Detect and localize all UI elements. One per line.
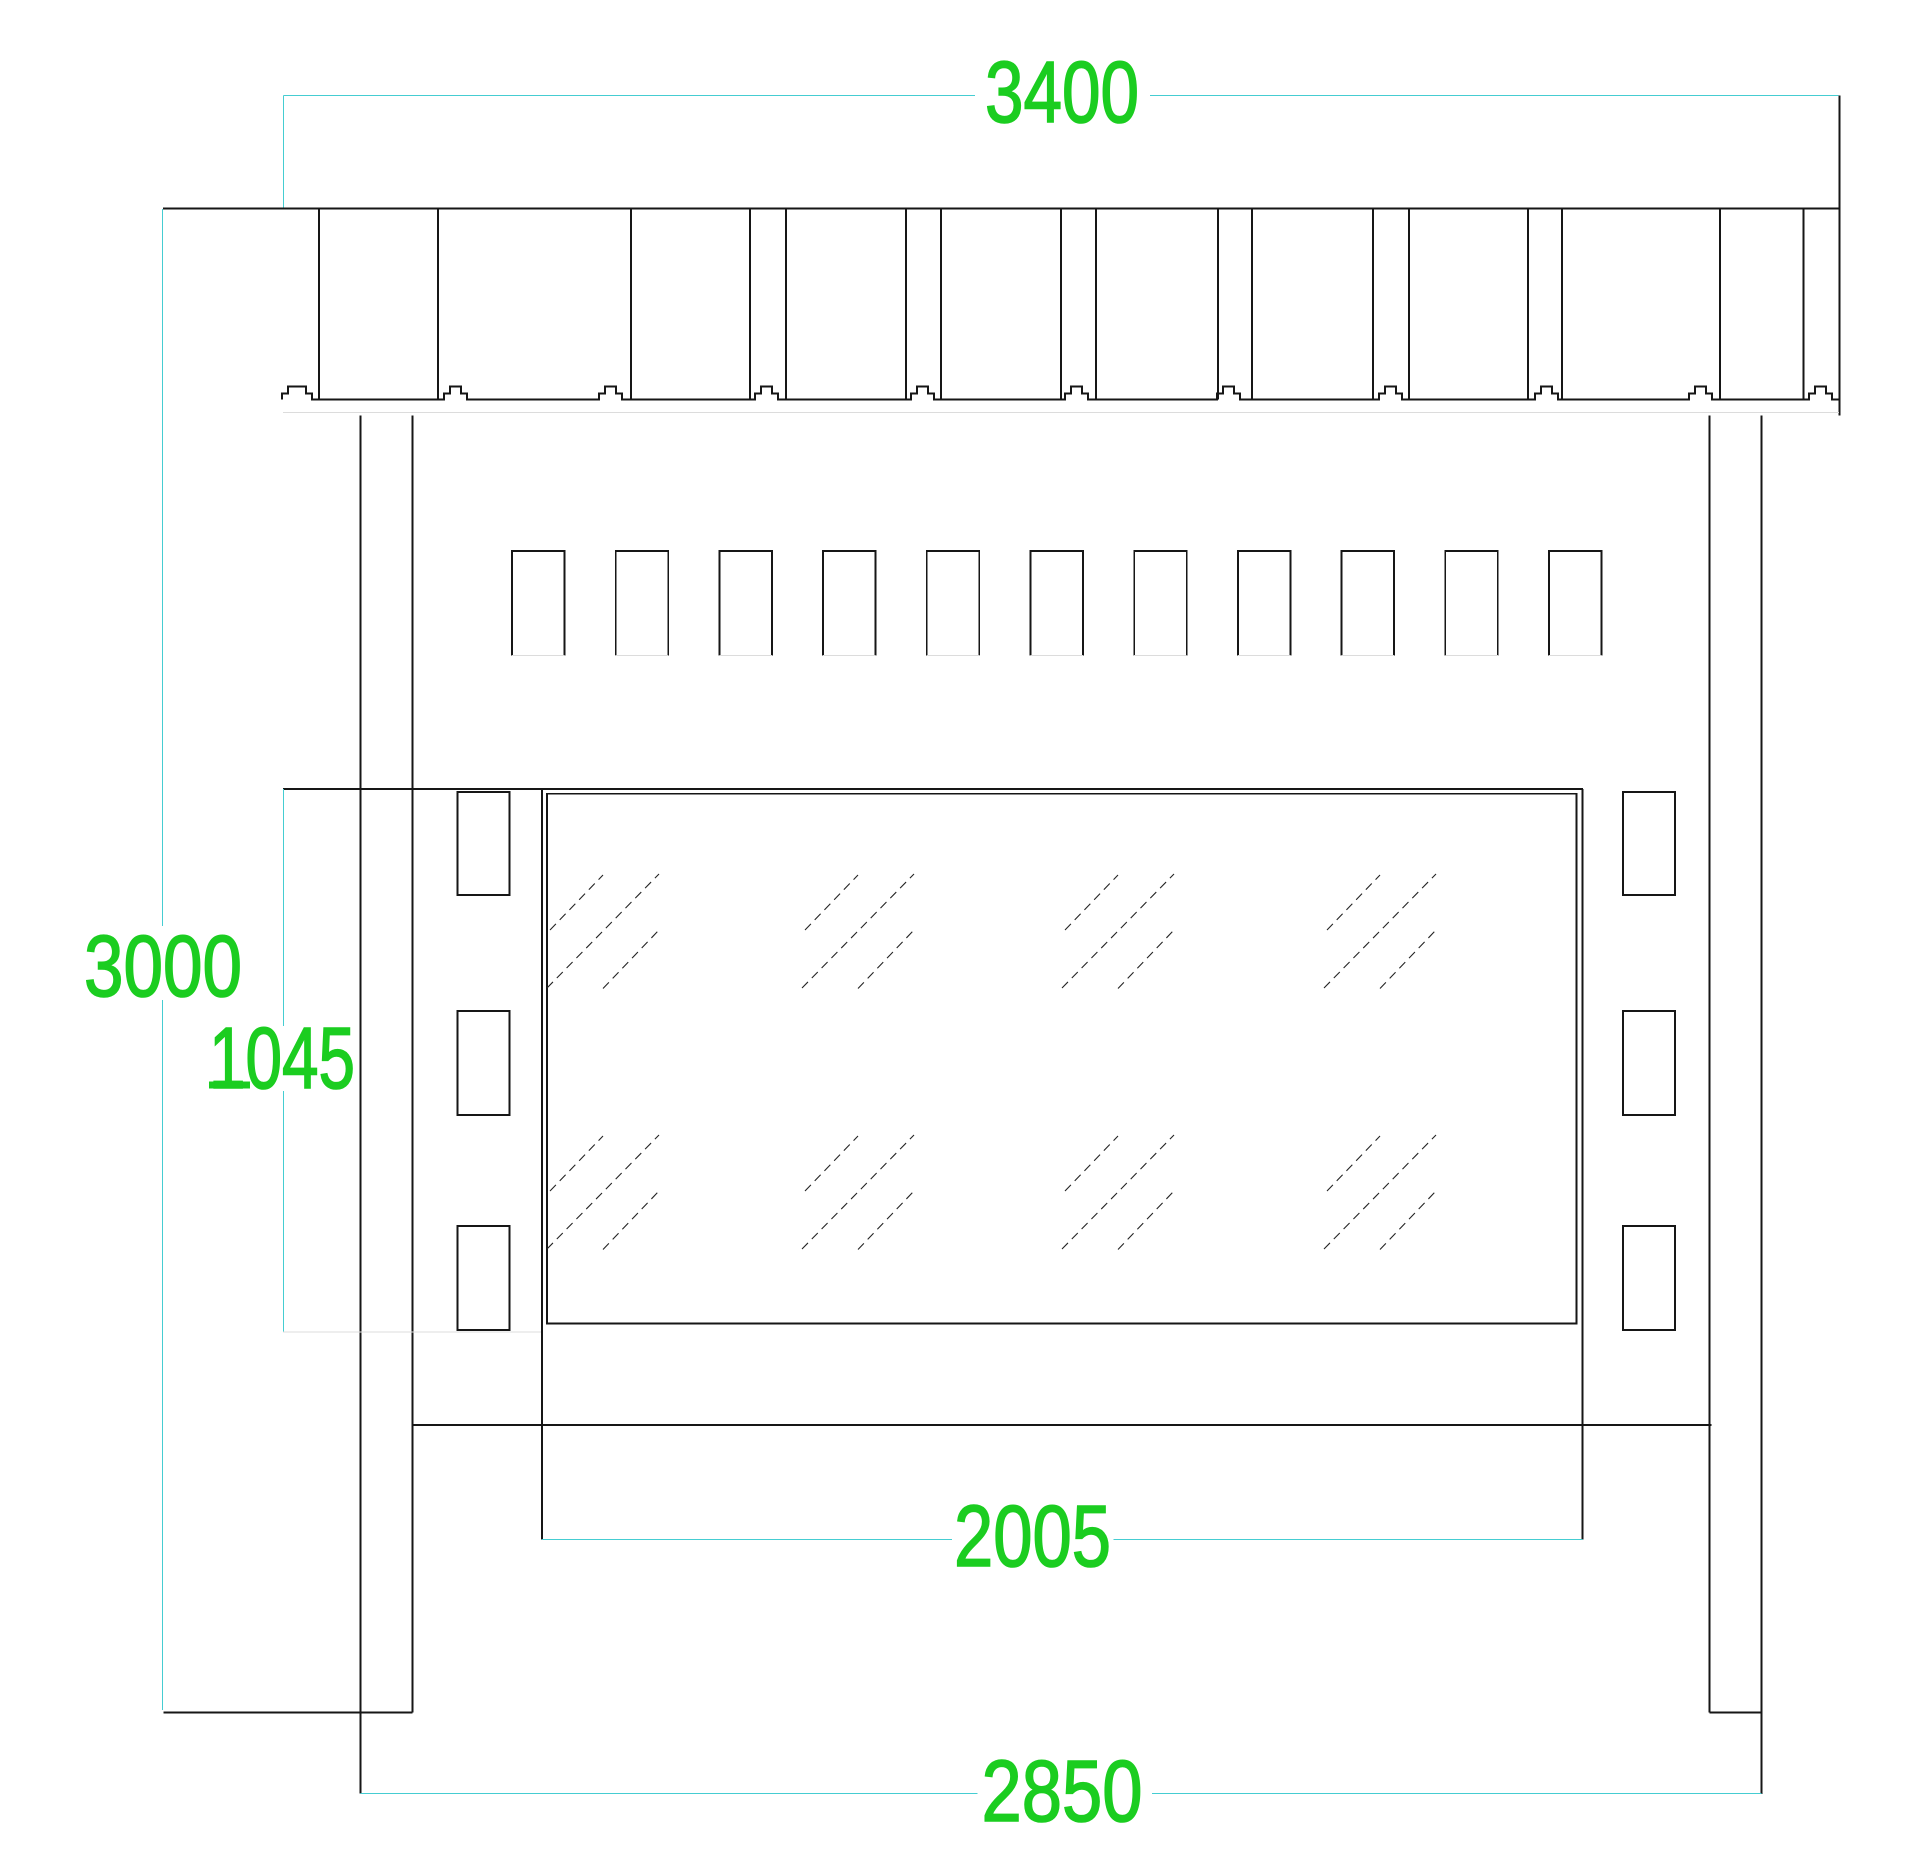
svg-text:2005: 2005 bbox=[954, 1488, 1111, 1585]
svg-text:2850: 2850 bbox=[982, 1743, 1143, 1840]
svg-text:3000: 3000 bbox=[84, 918, 242, 1015]
svg-text:1045: 1045 bbox=[209, 1010, 355, 1107]
svg-text:3400: 3400 bbox=[985, 44, 1139, 141]
